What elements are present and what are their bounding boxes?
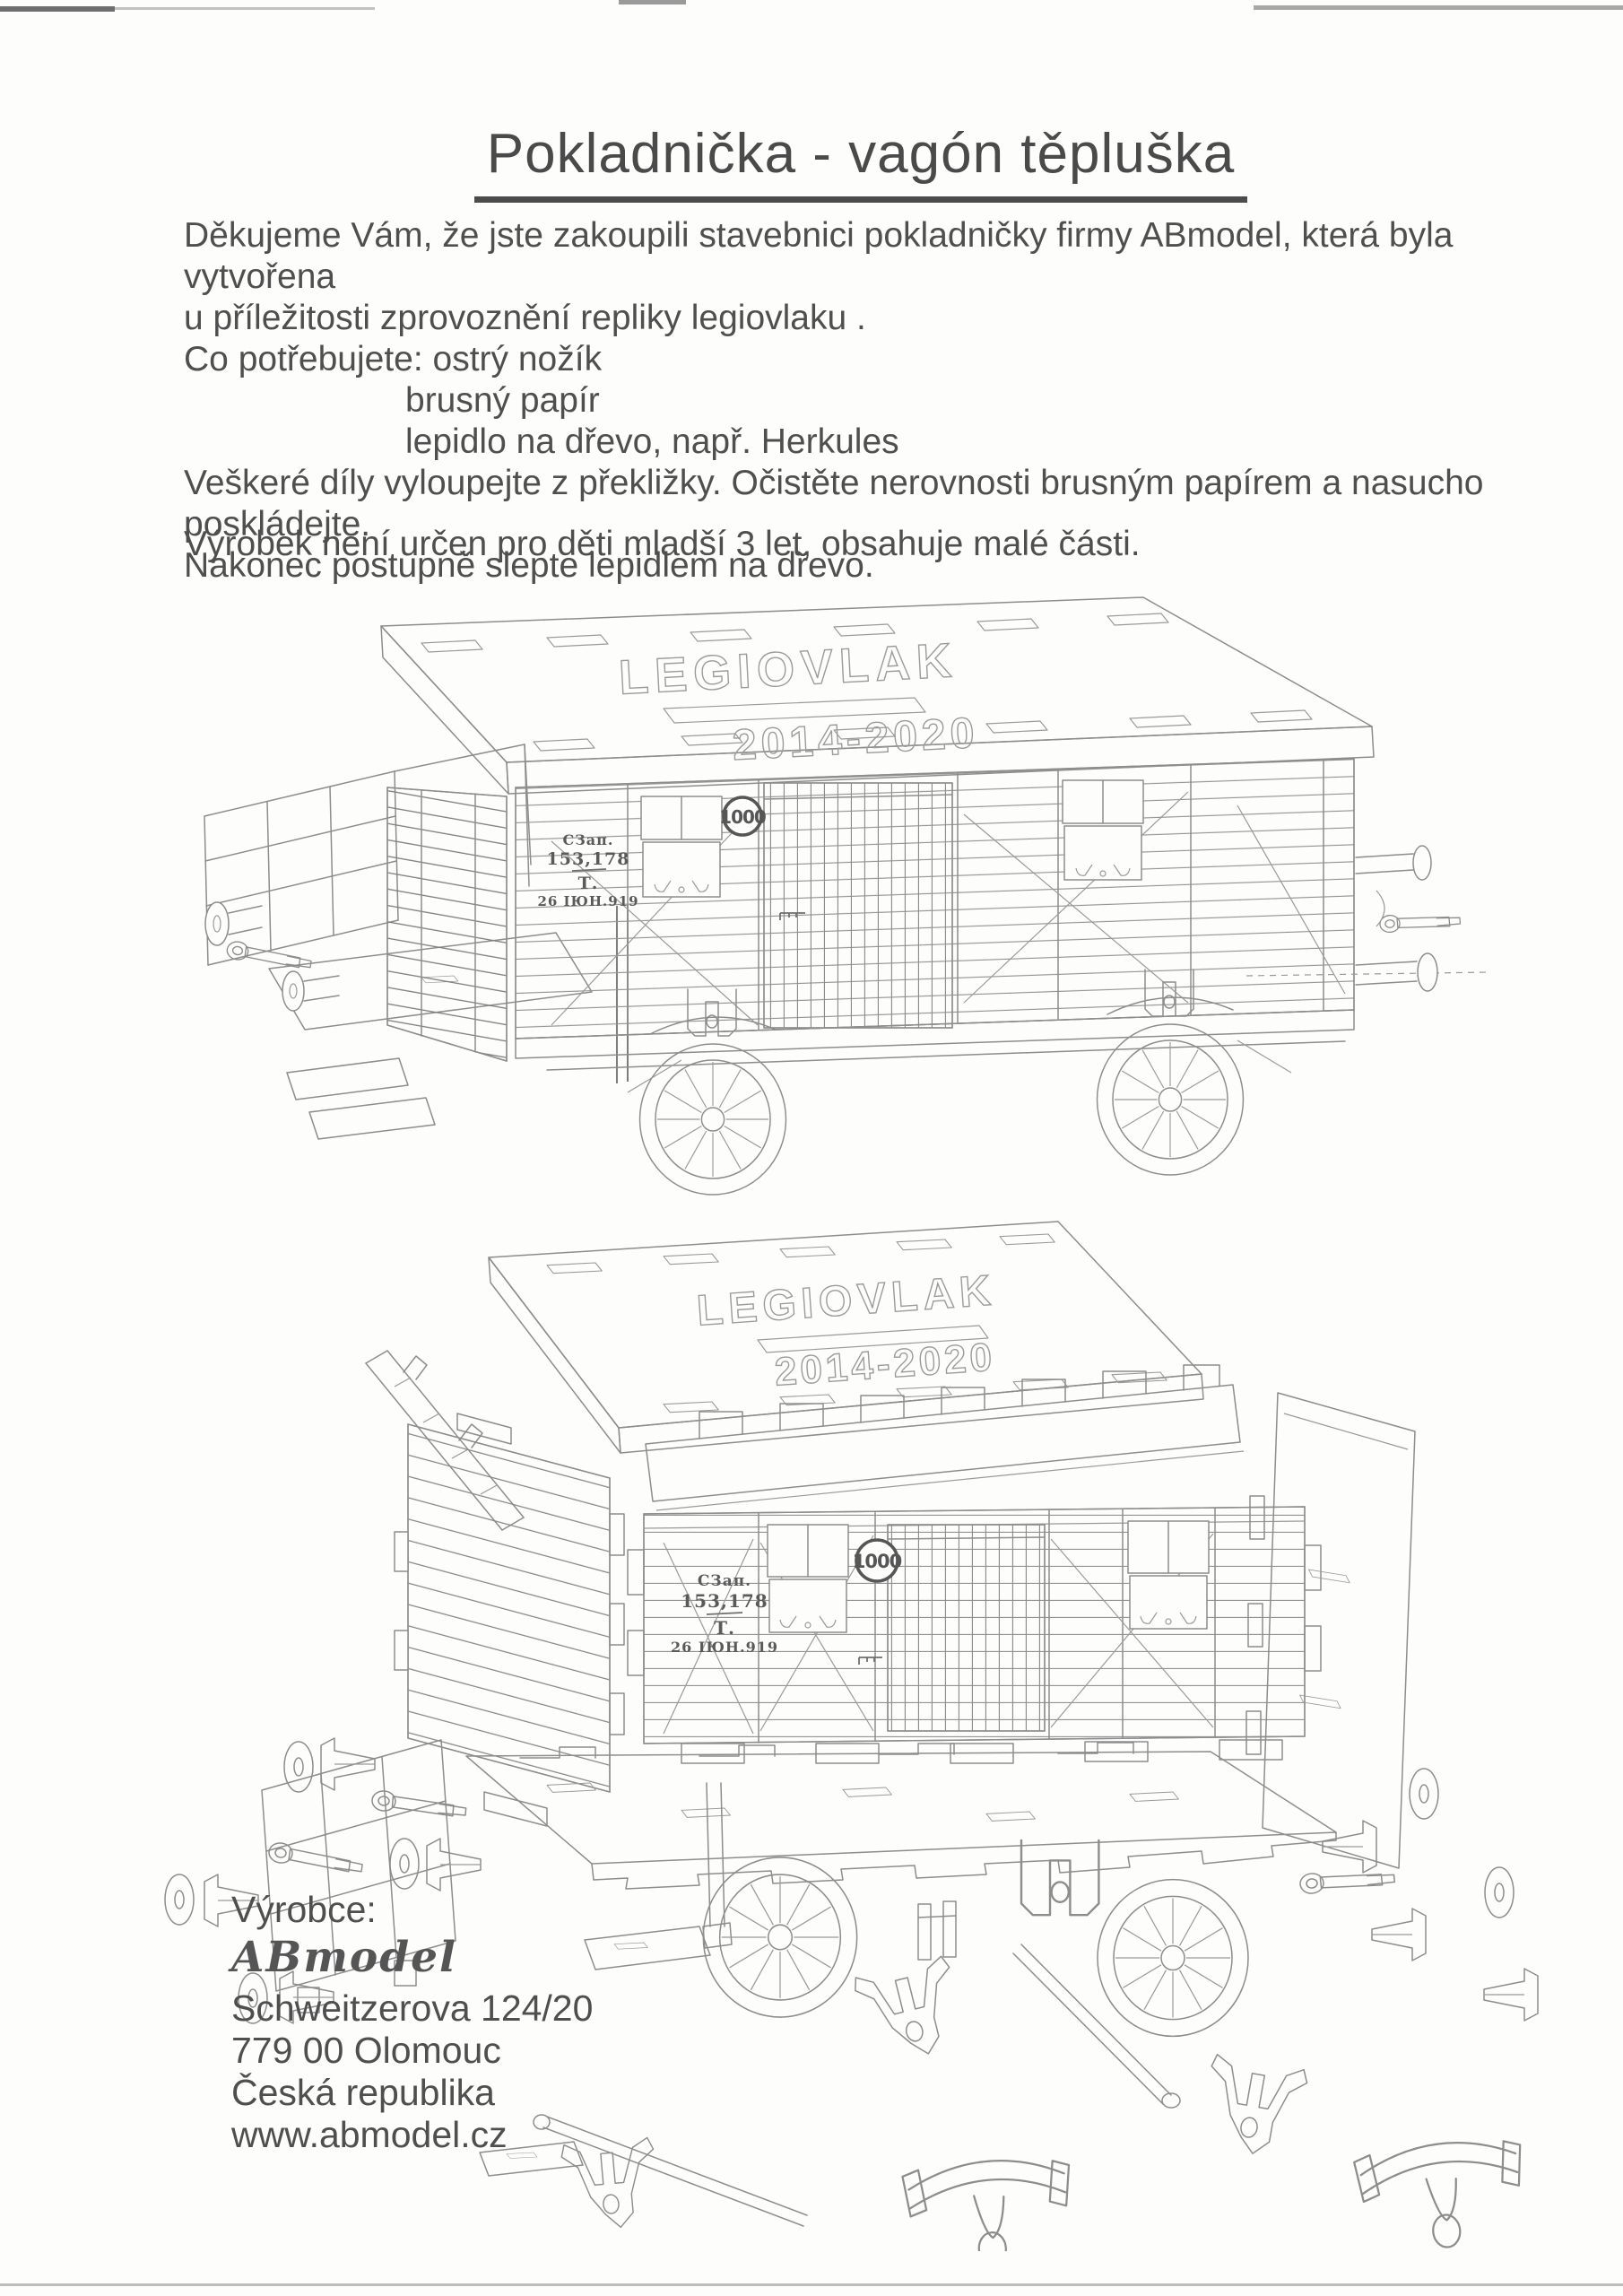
svg-text:26 ІЮН.919: 26 ІЮН.919 bbox=[671, 1639, 778, 1656]
window-right bbox=[1063, 780, 1143, 880]
side-panel-part bbox=[395, 1413, 624, 1826]
axle-guards bbox=[560, 1955, 1309, 2232]
intro-line: u příležitosti zprovoznění repliky legio… bbox=[184, 298, 1601, 339]
manufacturer-block: Výrobce: ABmodel Schweitzerova 124/20 77… bbox=[231, 1889, 593, 2156]
manufacturer-website: www.abmodel.cz bbox=[231, 2114, 593, 2156]
leaf-springs bbox=[902, 2135, 1530, 2251]
manufacturer-city: 779 00 Olomouc bbox=[231, 2030, 593, 2072]
scan-artifact-topleft2 bbox=[115, 7, 375, 10]
end-wall bbox=[387, 787, 507, 1061]
manufacturer-label: Výrobce: bbox=[231, 1889, 593, 1931]
scan-artifact-topleft bbox=[0, 6, 115, 12]
intro-line: Co potřebujete: ostrý nožík bbox=[184, 339, 1601, 380]
roof-engraving-name: LEGIOVLAK bbox=[695, 1266, 997, 1335]
intro-line: Děkujeme Vám, že jste zakoupili stavebni… bbox=[184, 215, 1601, 298]
scan-artifact-topmid bbox=[619, 0, 686, 4]
roof-panel-part: LEGIOVLAK 2014-2020 bbox=[489, 1222, 1203, 1453]
svg-text:153,178: 153,178 bbox=[547, 849, 630, 869]
small-parts-right bbox=[1299, 1769, 1538, 2021]
assembled-wagon-drawing: LEGIOVLAK 2014-2020 bbox=[126, 581, 1524, 1209]
spoked-wheels bbox=[703, 1857, 1248, 2036]
wagon-side: 1000 СЗап. 153,178 Т. 26 ІЮН.919 bbox=[516, 759, 1354, 1039]
manufacturer-country: Česká republika bbox=[231, 2072, 593, 2114]
intro-line: brusný papír bbox=[184, 380, 1601, 422]
svg-text:153,178: 153,178 bbox=[681, 1590, 768, 1612]
svg-text:Т.: Т. bbox=[578, 874, 599, 893]
page-title: Pokladnička - vagón těpluška bbox=[474, 122, 1247, 203]
svg-text:СЗап.: СЗап. bbox=[563, 831, 614, 848]
sliding-door bbox=[764, 783, 952, 1028]
right-buffers bbox=[1356, 846, 1461, 991]
load-badge-text: 1000 bbox=[853, 1551, 902, 1572]
scanned-instruction-sheet: Pokladnička - vagón těpluška Děkujeme Vá… bbox=[0, 0, 1623, 2296]
svg-text:СЗап.: СЗап. bbox=[698, 1572, 751, 1590]
intro-line: lepidlo na dřevo, např. Herkules bbox=[184, 422, 1601, 463]
load-badge-text: 1000 bbox=[719, 806, 766, 828]
roof-engraving-name: LEGIOVLAK bbox=[618, 633, 959, 705]
scan-artifact-topright bbox=[1254, 5, 1623, 10]
wall-top-strip-part bbox=[646, 1365, 1244, 1510]
svg-text:Т.: Т. bbox=[714, 1617, 735, 1639]
roof-engraving-years: 2014-2020 bbox=[773, 1335, 996, 1395]
window-left bbox=[641, 796, 722, 897]
brand-logo-text: ABmodel bbox=[231, 1936, 593, 1979]
manufacturer-street: Schweitzerova 124/20 bbox=[231, 1987, 593, 2030]
body-part: 1000 СЗап. 153,178 Т. 26 ІЮН.919 bbox=[628, 1507, 1321, 1763]
svg-text:26 ІЮН.919: 26 ІЮН.919 bbox=[537, 893, 638, 909]
age-warning: Výrobek není určen pro děti mladší 3 let… bbox=[184, 525, 1141, 564]
scan-artifact-bottom bbox=[0, 2283, 1623, 2286]
